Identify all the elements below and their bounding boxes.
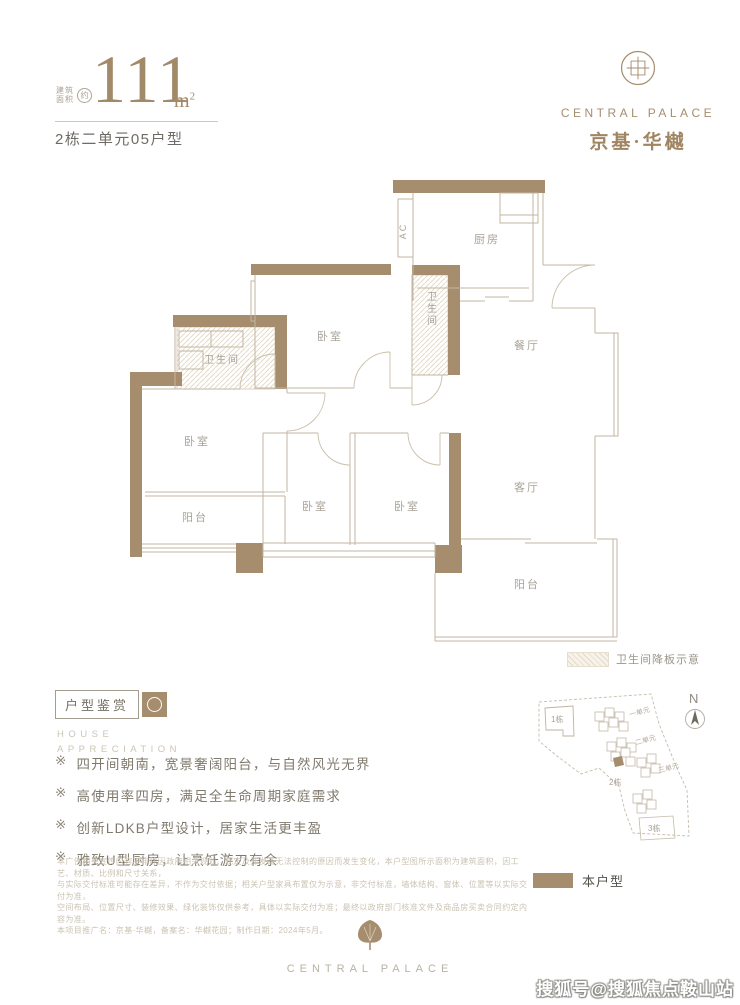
- dining-label: 餐厅: [514, 338, 540, 352]
- balcony-right-label: 阳台: [514, 577, 540, 591]
- area-unit: m2: [174, 90, 195, 113]
- header-divider: [55, 121, 218, 122]
- flyer-canvas: 建筑面积 约 111 m2 2栋二单元05户型 CENTRAL PALACE 京…: [0, 0, 740, 1005]
- unit-type-label: 2栋二单元05户型: [55, 128, 184, 149]
- list-item: ※ 四开间朝南，宽景奢阔阳台，与自然风光无界: [55, 753, 371, 773]
- bedroom-left-label: 卧室: [184, 434, 210, 448]
- building-cluster-3: [633, 754, 660, 813]
- sunken-slab-swatch: [567, 652, 609, 667]
- bath-mid-label: 卫生间: [425, 291, 437, 327]
- brand-block: CENTRAL PALACE 京基·华樾: [553, 42, 723, 154]
- footer-brand-name: CENTRAL PALACE: [0, 963, 740, 975]
- current-unit-legend: 本户型: [533, 871, 624, 890]
- disclaimer-line: 本广告相关宣传内容不排除因政府相关规划、规定及开发商无法控制的原因而发生变化，本…: [57, 856, 529, 879]
- floorplan-drawing: 厨房 餐厅 客厅 阳台 卧室 卧室 卧室 卧室 阳台 卫生间 卫生间 AC: [125, 163, 630, 655]
- footer-brand: CENTRAL PALACE: [0, 918, 740, 975]
- ginkgo-leaf-icon: [357, 918, 383, 952]
- ac-label: AC: [398, 223, 408, 240]
- unit-1-label: 一单元: [628, 705, 651, 719]
- bedroom-mid-left-label: 卧室: [302, 499, 328, 513]
- compass-n-label: N: [689, 691, 698, 706]
- bedroom-top-label: 卧室: [317, 329, 343, 343]
- area-note: 建筑面积 约: [56, 86, 92, 104]
- bath-left-label: 卫生间: [204, 353, 240, 366]
- room-labels: 厨房 餐厅 客厅 阳台 卧室 卧室 卧室 卧室 阳台 卫生间 卫生间 AC: [182, 223, 540, 591]
- appreciation-header: 户型鉴赏: [55, 690, 167, 719]
- sunken-slab-legend: 卫生间降板示意: [567, 651, 700, 667]
- bathroom-sunken-zones: [177, 275, 448, 389]
- bullet-text: 四开间朝南，宽景奢阔阳台，与自然风光无界: [77, 753, 371, 773]
- list-item: ※ 创新LDKB户型设计，居家生活更丰盈: [55, 817, 371, 837]
- bullet-marker: ※: [55, 785, 68, 805]
- compass: N: [686, 691, 705, 729]
- disclaimer-line: 与实际交付标准可能存在差异，不作为交付依据；相关户型家具布置仅为示意，非交付标准…: [57, 879, 529, 902]
- approx-badge: 约: [77, 88, 92, 103]
- current-unit-label: 本户型: [582, 871, 624, 890]
- partition-walls: [142, 193, 618, 641]
- building-cluster-1: [595, 708, 628, 731]
- unit-3-label: 三单元: [657, 761, 680, 775]
- building-3-label: 3栋: [648, 823, 660, 833]
- brand-seal-small-icon: [142, 692, 167, 717]
- living-label: 客厅: [514, 480, 540, 494]
- bullet-text: 创新LDKB户型设计，居家生活更丰盈: [77, 817, 323, 837]
- current-unit-marker: [613, 756, 624, 767]
- sunken-slab-label: 卫生间降板示意: [616, 651, 700, 667]
- bullet-text: 高使用率四房，满足全生命周期家庭需求: [77, 785, 342, 805]
- compass-needle-icon: [691, 710, 699, 725]
- brand-seal-icon: [612, 42, 664, 94]
- building-1-label: 1栋: [551, 714, 563, 724]
- list-item: ※ 高使用率四房，满足全生命周期家庭需求: [55, 785, 371, 805]
- building-2-label: 2栋: [609, 777, 621, 787]
- area-note-text: 建筑面积: [56, 86, 74, 104]
- appreciation-title: 户型鉴赏: [55, 690, 139, 719]
- kitchen-label: 厨房: [474, 233, 500, 246]
- watermark-text: 搜狐号@搜狐焦点鞍山站: [536, 975, 734, 1000]
- brand-name-cn: 京基·华樾: [553, 127, 723, 154]
- brand-name-en: CENTRAL PALACE: [553, 106, 723, 120]
- balcony-left-label: 阳台: [182, 510, 208, 524]
- unit-2-label: 二单元: [634, 733, 657, 747]
- bedroom-mid-right-label: 卧室: [394, 499, 420, 513]
- bullet-marker: ※: [55, 817, 68, 837]
- site-plan-map: 1栋 一单元 二单元 三单元 2栋 3栋 N: [533, 686, 733, 851]
- bullet-marker: ※: [55, 753, 68, 773]
- current-unit-swatch: [533, 873, 573, 888]
